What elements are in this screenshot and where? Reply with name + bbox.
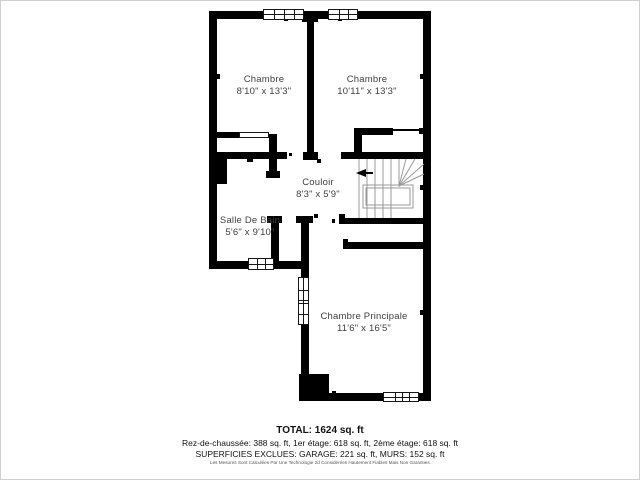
room-name: Chambre [287,74,447,86]
window [328,9,358,20]
wall-closet1-stub [209,132,239,138]
room-label-salle-de-bain: Salle De Bain 5'6" x 9'10" [170,215,330,239]
fireplace-block [299,374,329,395]
wall-tick [247,158,253,162]
total-area-text: TOTAL: 1624 sq. ft [1,425,639,436]
room-name: Chambre Principale [284,311,444,323]
window [263,9,304,20]
room-label-chambre-2: Chambre 10'11" x 13'3" [287,74,447,98]
wall-tick [332,391,336,394]
wall-tick [332,219,335,223]
room-name: Salle De Bain [170,215,330,227]
floor-plan-page: Chambre 8'10" x 13'3" Chambre 10'11" x 1… [0,0,640,480]
room-dimensions: 8'3" x 5'9" [238,189,398,201]
excluded-areas-text: SUPERFICIES EXCLUES: GARAGE: 221 sq. ft,… [1,449,639,459]
wall-top [209,11,431,19]
room-dimensions: 5'6" x 9'10" [170,227,330,239]
closet1-door-leaf [239,132,269,138]
floor-areas-text: Rez-de-chaussée: 388 sq. ft, 1er étage: … [1,438,639,448]
room-dimensions: 11'6" x 16'5" [284,323,444,335]
wall-end-tick [343,239,348,243]
disclaimer-text: Les Mesures Sont Calculées Par Une Techn… [1,460,639,469]
wall-master-top [343,242,431,249]
window [248,258,274,270]
chimney-block [210,153,227,184]
wall-divider-anchor [302,17,318,22]
window [383,392,419,402]
room-label-couloir: Couloir 8'3" x 5'9" [238,177,398,201]
disclaimer-inner: Les Mesures Sont Calculées Par Une Techn… [210,460,431,465]
room-dimensions: 10'11" x 13'3" [287,86,447,98]
wall-divider-foot [303,152,318,160]
wall-end-tick [419,128,425,134]
room-name: Couloir [238,177,398,189]
wall-tick [317,159,321,163]
room-label-chambre-principale: Chambre Principale 11'6" x 16'5" [284,311,444,335]
wall-tick [289,153,292,156]
